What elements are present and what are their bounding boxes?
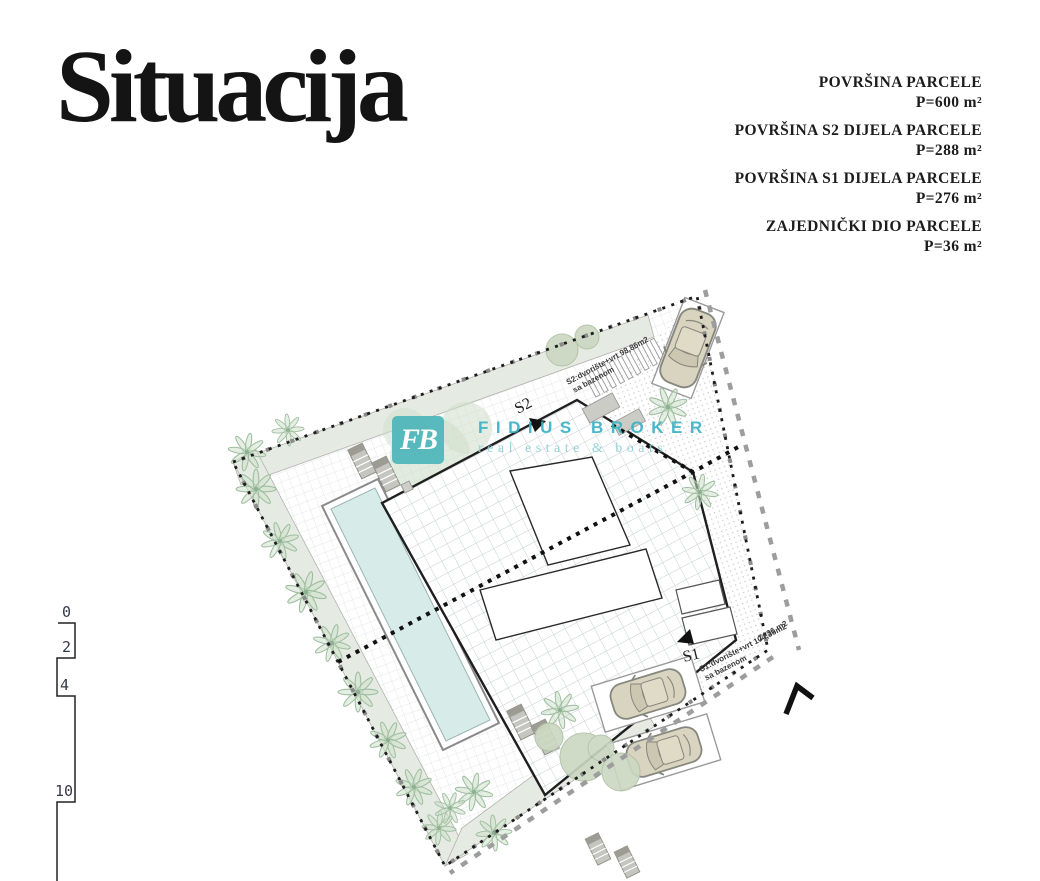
broker-watermark: FB FIDIUS BROKER real estate & boats <box>392 416 710 464</box>
north-arrow <box>786 686 813 714</box>
area-row-parcel: POVRŠINA PARCELE P=600 m² <box>735 74 982 112</box>
area-row-s1: POVRŠINA S1 DIJELA PARCELE P=276 m² <box>735 170 982 208</box>
area-value: P=600 m² <box>735 94 982 112</box>
site-plan-sheet: S2 S1 S2:dvorište+vrt 98,86m2 sa bazenom… <box>0 0 1040 881</box>
broker-text: FIDIUS BROKER real estate & boats <box>478 416 710 457</box>
area-label: POVRŠINA S1 DIJELA PARCELE <box>735 170 982 188</box>
area-label: ZAJEDNIČKI DIO PARCELE <box>735 218 982 236</box>
area-value: P=36 m² <box>735 238 982 256</box>
broker-logo-icon: FB <box>392 416 444 464</box>
scale-bar: 0 2 4 10 <box>55 603 75 881</box>
broker-name: FIDIUS BROKER <box>478 418 710 438</box>
area-row-s2: POVRŠINA S2 DIJELA PARCELE P=288 m² <box>735 122 982 160</box>
area-value: P=276 m² <box>735 190 982 208</box>
area-value: P=288 m² <box>735 142 982 160</box>
area-legend: POVRŠINA PARCELE P=600 m² POVRŠINA S2 DI… <box>735 74 982 266</box>
broker-tagline: real estate & boats <box>478 441 710 457</box>
scale-label-4: 4 <box>60 676 69 694</box>
page-title: Situacija <box>56 30 404 144</box>
scale-label-10: 10 <box>55 782 73 800</box>
scale-label-2: 2 <box>62 638 71 656</box>
area-label: POVRŠINA PARCELE <box>735 74 982 92</box>
area-row-common: ZAJEDNIČKI DIO PARCELE P=36 m² <box>735 218 982 256</box>
scale-label-0: 0 <box>62 603 71 621</box>
area-label: POVRŠINA S2 DIJELA PARCELE <box>735 122 982 140</box>
